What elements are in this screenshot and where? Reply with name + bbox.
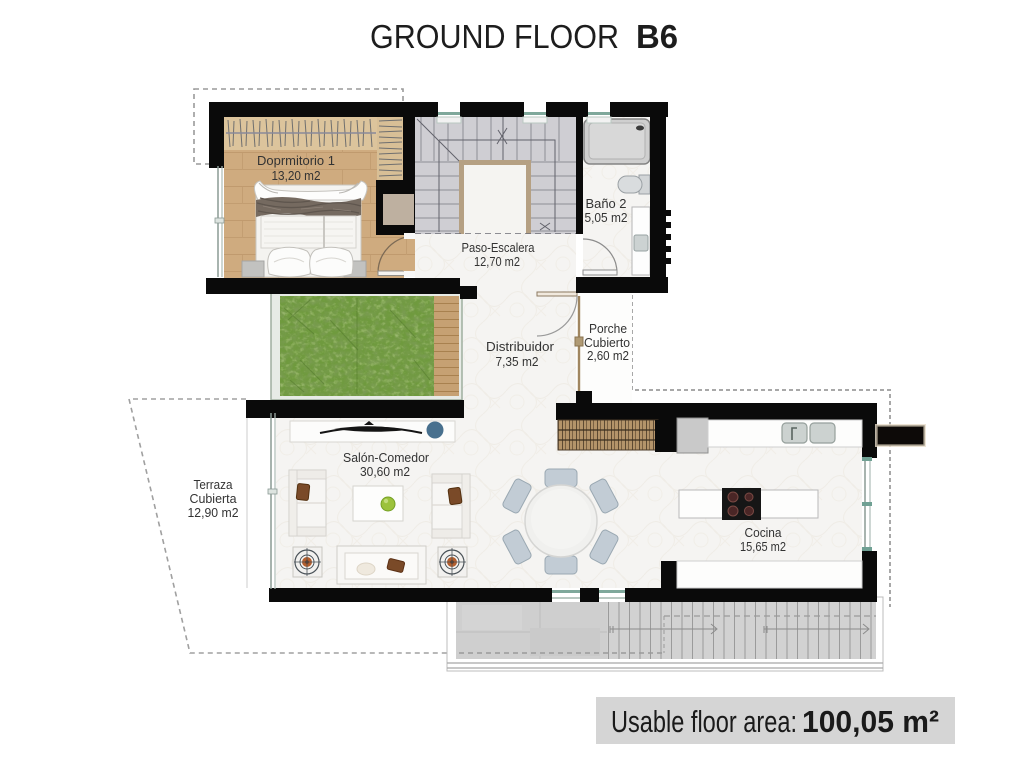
svg-text:Distribuidor: Distribuidor	[486, 339, 555, 354]
svg-text:Salón-Comedor: Salón-Comedor	[343, 450, 430, 465]
svg-text:12,90 m2: 12,90 m2	[188, 505, 239, 520]
svg-text:Doprmitorio 1: Doprmitorio 1	[257, 153, 335, 168]
svg-text:7,35 m2: 7,35 m2	[496, 354, 539, 369]
svg-text:Paso-Escalera: Paso-Escalera	[462, 240, 536, 255]
svg-text:15,65 m2: 15,65 m2	[740, 539, 786, 554]
svg-text:100,05 m²: 100,05 m²	[802, 705, 939, 739]
svg-text:Porche: Porche	[589, 321, 627, 336]
svg-text:Usable floor area:: Usable floor area:	[611, 705, 797, 739]
svg-text:Baño 2: Baño 2	[586, 196, 627, 211]
svg-text:12,70 m2: 12,70 m2	[474, 254, 520, 269]
svg-text:2,60 m2: 2,60 m2	[587, 348, 629, 363]
svg-text:B6: B6	[636, 19, 678, 56]
svg-text:13,20 m2: 13,20 m2	[272, 168, 321, 183]
svg-text:Terraza: Terraza	[194, 477, 234, 492]
svg-text:30,60 m2: 30,60 m2	[360, 464, 410, 479]
svg-text:Cubierta: Cubierta	[190, 491, 238, 506]
svg-text:5,05 m2: 5,05 m2	[585, 210, 628, 225]
svg-text:GROUND FLOOR: GROUND FLOOR	[370, 19, 619, 56]
svg-text:Cocina: Cocina	[745, 525, 783, 540]
